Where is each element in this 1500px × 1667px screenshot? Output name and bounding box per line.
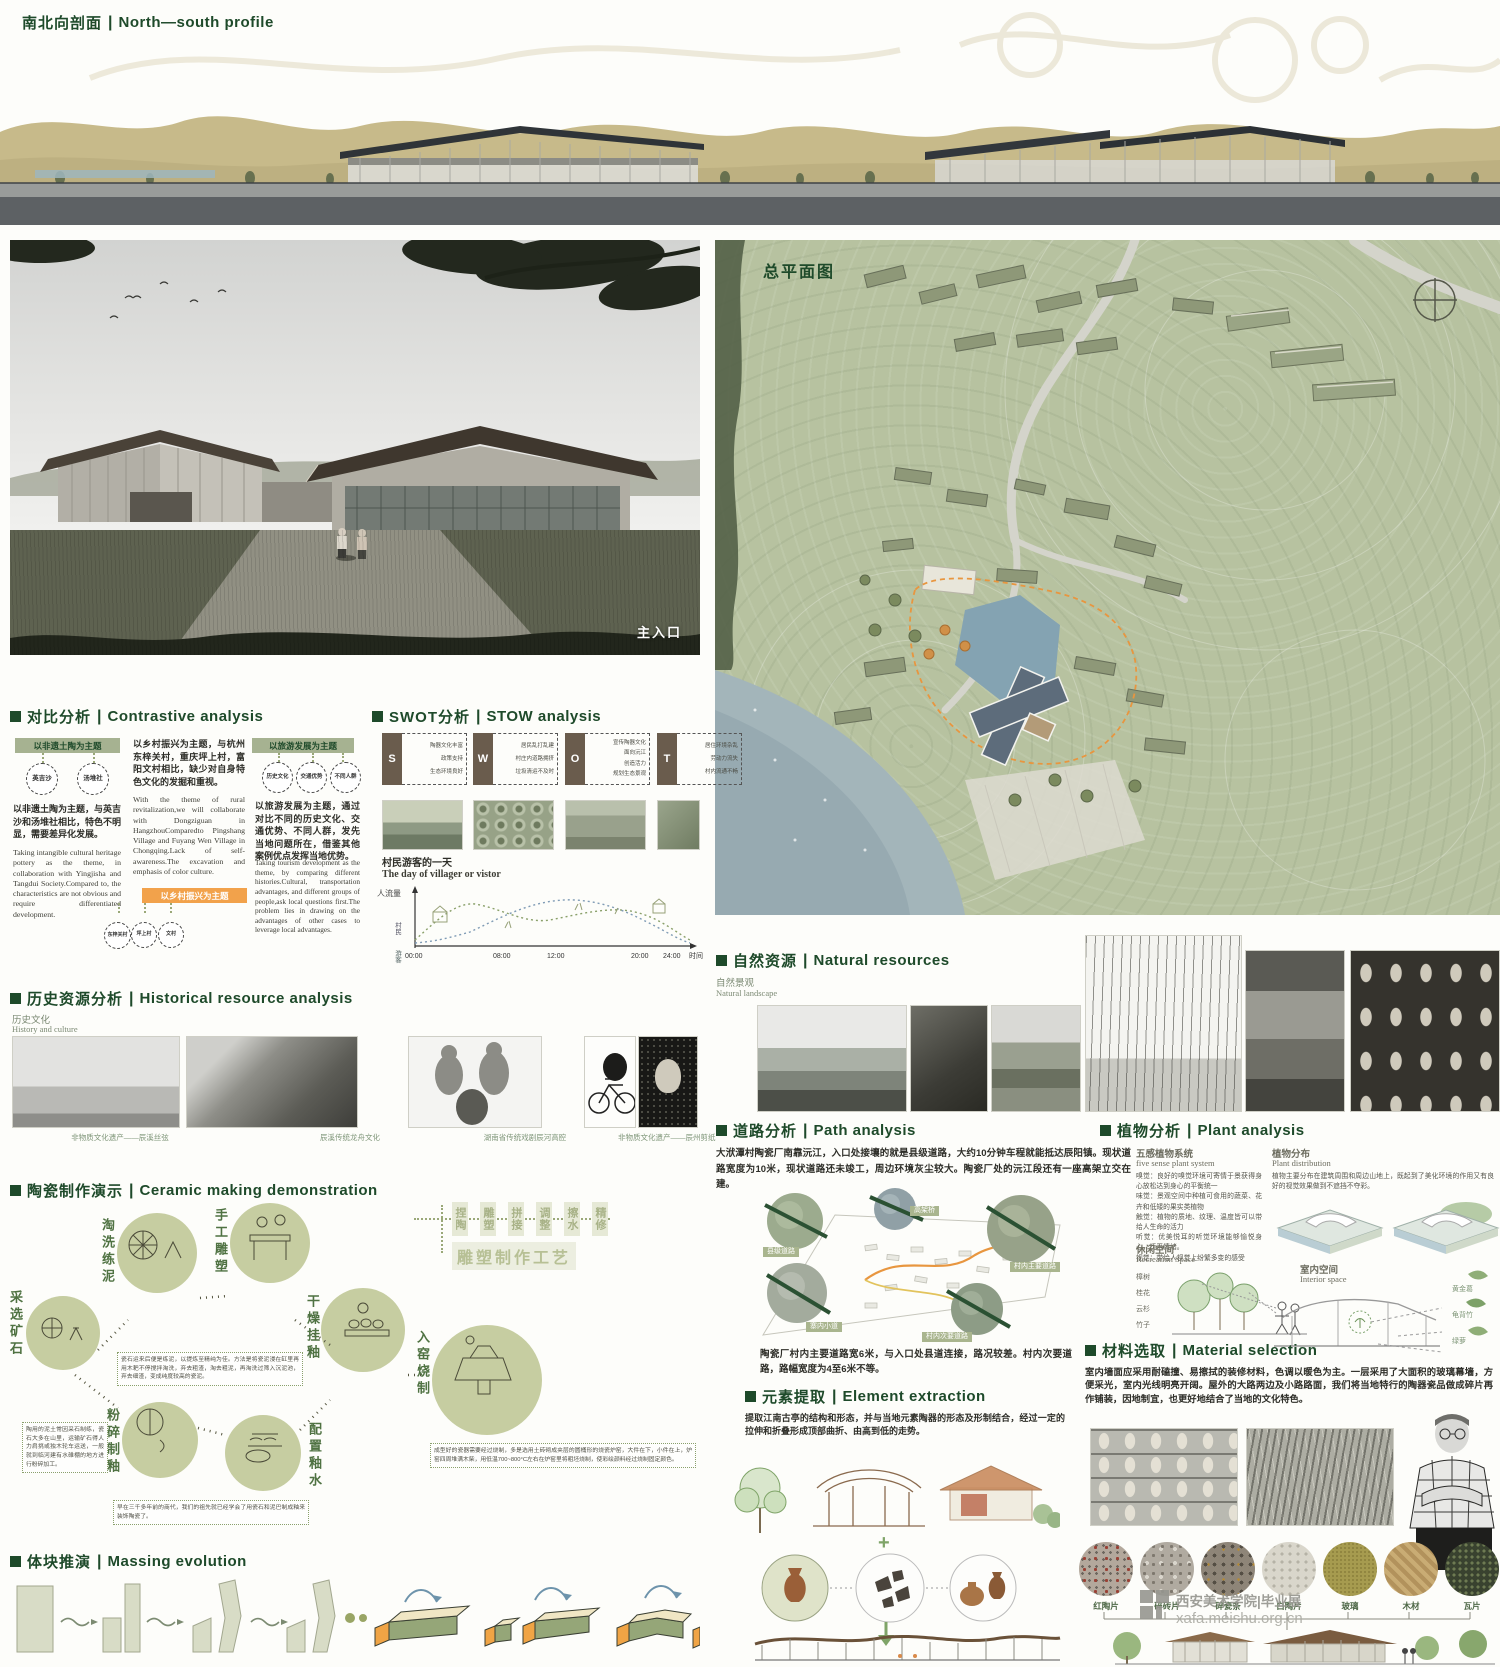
plant-title: 植物分析 | Plant analysis — [1100, 1120, 1305, 1141]
section-bullet — [10, 993, 21, 1004]
plant-distribution-diagrams — [1268, 1192, 1500, 1258]
natural-sub-en: Natural landscape — [716, 988, 777, 998]
rural-circle-3: 文村 — [158, 922, 184, 948]
watermark-logo-icon — [1140, 1590, 1170, 1620]
visitor-flow-chart: 人流量 村民 游客 00:00 08:00 12:00 20:00 24:00 … — [375, 884, 705, 969]
presentation-board: 南北向剖面 | North—south profile — [0, 0, 1500, 1667]
swot-title: SWOT分析 | STOW analysis — [372, 706, 601, 727]
tree-sketch — [735, 1468, 786, 1533]
plant-outdoor-3: 云杉 — [1136, 1304, 1150, 1314]
building-main-hall — [306, 426, 658, 530]
card-tourism-header: 以旅游发展为主题 — [252, 738, 354, 753]
section-bullet — [1100, 1125, 1111, 1136]
material-photo-pottery — [1090, 1428, 1238, 1526]
map-edge-trees — [715, 240, 745, 670]
tourism-circle-2: 交通优势 — [296, 762, 327, 793]
history-photo-opera — [408, 1036, 542, 1128]
card-pottery-header: 以非遗土陶为主题 — [15, 738, 120, 753]
pottery-text-zh: 以非遗土陶为主题，与英吉沙和汤堆社相比，特色不明显，需要差异化发展。 — [13, 803, 121, 841]
path-label-viaduct: 高架桥 — [910, 1206, 939, 1216]
card-rural-header: 以乡村振兴为主题 — [142, 888, 247, 903]
path-label-lane: 寨内小道 — [806, 1322, 842, 1332]
rural-circle-1: 东梓关村 — [104, 922, 131, 949]
material-swatch-red-pottery: 红陶片 — [1077, 1542, 1135, 1612]
swatch-texture — [1201, 1542, 1255, 1596]
svg-text:游客: 游客 — [394, 949, 402, 965]
profile-title: 南北向剖面 | North—south profile — [22, 12, 274, 33]
material-swatch-wood: 木材 — [1382, 1542, 1440, 1612]
swatch-texture — [1323, 1542, 1377, 1596]
history-photo-papercut — [638, 1036, 698, 1128]
pottery-circle-1: 英吉沙 — [26, 763, 58, 795]
swatch-texture — [1262, 1542, 1316, 1596]
swot-photo-river — [657, 800, 700, 850]
material-photo-timber — [1246, 1428, 1394, 1526]
five-sense-en: five sense plant system — [1136, 1158, 1215, 1168]
natural-photo-bare-trees — [1085, 935, 1242, 1112]
birds — [110, 282, 226, 318]
step-label-wash: 淘洗练泥 — [98, 1218, 117, 1286]
cottage-sketch — [940, 1466, 1060, 1528]
extracted-roof-elevation — [750, 1630, 1065, 1667]
section-bullet — [1085, 1345, 1096, 1356]
contrastive-title: 对比分析 | Contrastive analysis — [10, 706, 263, 727]
section-bullet — [10, 1556, 21, 1567]
north-south-profile-drawing — [0, 0, 1500, 232]
section-bullet — [372, 711, 383, 722]
interior-en: Interior space — [1300, 1274, 1347, 1284]
pavilion-sketch — [813, 1470, 925, 1526]
svg-text:20:00: 20:00 — [631, 953, 649, 960]
plant-outdoor-1: 樟树 — [1136, 1272, 1150, 1282]
step-label-glazewater: 配置釉水 — [305, 1422, 324, 1490]
swot-photo-street — [565, 800, 646, 850]
plant-outdoor-4: 竹子 — [1136, 1320, 1150, 1330]
svg-text:人流量: 人流量 — [377, 888, 401, 898]
building-left-hall — [40, 430, 280, 522]
tree-canopy — [10, 240, 700, 318]
note-glaze: 早在三千多年前的商代，我们的祖先就已经学会了用瓷石和泥巴制成釉来装饰陶瓷了。 — [113, 1500, 309, 1525]
plant-dist-text: 植物主要分布在建筑周围和周边山地上，既起到了美化环境的作用又有良好的视觉效果做到… — [1272, 1172, 1494, 1192]
element-sketches — [725, 1448, 1060, 1540]
pottery-element-circles — [740, 1552, 1040, 1624]
natural-sub-zh: 自然景观 — [716, 975, 754, 989]
element-text: 提取江南古亭的结构和形态，并与当地元素陶器的形态及形制结合，经过一定的拉伸和折叠… — [745, 1412, 1065, 1437]
path-label-county-road: 县级道路 — [763, 1247, 799, 1257]
step-label-sculpt: 手工雕塑 — [211, 1208, 230, 1276]
section-bullet — [10, 711, 21, 722]
massing-diagram — [5, 1578, 700, 1666]
swatch-texture — [1079, 1542, 1133, 1596]
rural-text-zh: 以乡村振兴为主题，与杭州东梓关村，重庆坪上村，富阳文村相比，缺少对自身特色文化的… — [133, 738, 245, 788]
material-elevation — [1105, 1628, 1500, 1667]
svg-text:08:00: 08:00 — [493, 953, 511, 960]
material-swatch-tile: 瓦片 — [1443, 1542, 1500, 1612]
svg-text:时间: 时间 — [689, 951, 703, 960]
pottery-circle-2: 汤堆社 — [77, 763, 109, 795]
plant-outdoor-2: 桂花 — [1136, 1288, 1150, 1298]
history-caption-3: 湖南省传统戏剧辰河高腔 — [445, 1133, 605, 1143]
pottery-text-en: Taking intangible cultural heritage pott… — [13, 848, 121, 920]
svg-text:00:00: 00:00 — [405, 953, 423, 960]
tourism-text-zh: 以旅游发展为主题，通过对比不同的历史文化、交通优势、不同人群，发先当地问题所在，… — [255, 800, 360, 863]
note-mine: 陶用的泥土常因采石制练，瓷石大多在山里，运输矿石得人力肩挑或独木轮车运送，一般就… — [22, 1422, 108, 1473]
ground-band — [0, 183, 1500, 197]
swot-card-o: O 宣传陶器文化面向沅江创造活力规划生态景观 — [565, 733, 650, 785]
tourism-circle-1: 历史文化 — [262, 762, 293, 793]
rural-text-en: With the theme of rural revitalization,w… — [133, 795, 245, 877]
swot-card-t: T 居住环境杂乱劳动力流失村内流通不畅 — [657, 733, 742, 785]
step-label-dry: 干燥挂釉 — [303, 1294, 322, 1362]
greenhouse-buildings — [1226, 308, 1395, 401]
history-photo-silk-strings — [12, 1036, 180, 1128]
site-plan-title: 总平面图 — [763, 258, 835, 282]
swot-card-s: S 陶器文化丰富政策支持生态环境良好 — [382, 733, 467, 785]
ceramic-doodles — [0, 1150, 700, 1550]
cloud-swirl-decoration — [90, 15, 1500, 100]
swatch-texture — [1140, 1542, 1194, 1596]
history-caption-2: 辰溪传统龙舟文化 — [285, 1133, 415, 1143]
svg-text:12:00: 12:00 — [547, 953, 565, 960]
note-clay: 瓷石运来后便是练泥，以提炼至精纯为佳。方法是将瓷泥浸在缸里再用木耙不停搅拌淘洗，… — [117, 1352, 303, 1386]
day-title-en: The day of villager or vistor — [382, 869, 501, 880]
white-roof-building — [922, 565, 976, 594]
entrance-label: 主入口 — [637, 622, 682, 641]
massing-title: 体块推演 | Massing evolution — [10, 1551, 247, 1572]
building-link — [262, 482, 332, 522]
path-title: 道路分析 | Path analysis — [716, 1120, 916, 1141]
history-photo-dragon-boat — [186, 1036, 358, 1128]
rural-circle-2: 坪上村 — [131, 922, 157, 948]
plant-dist-en: Plant distribution — [1272, 1158, 1331, 1168]
element-title: 元素提取 | Element extraction — [745, 1386, 986, 1407]
water-strip — [35, 170, 215, 178]
site-plan: 总平面图 — [715, 240, 1500, 915]
material-swatch-glass: 玻璃 — [1321, 1542, 1379, 1612]
natural-photo-field — [991, 1005, 1081, 1112]
watermark: 西安美术学院|毕业展 xafa.meishu.org.cn — [1140, 1590, 1303, 1627]
entrance-rendering: 主入口 — [10, 240, 700, 655]
natural-title: 自然资源 | Natural resources — [716, 950, 950, 971]
day-title-zh: 村民游客的一天 — [382, 854, 452, 869]
swatch-texture — [1445, 1542, 1499, 1596]
path-text-2: 陶瓷厂村内主要道路宽6米，与入口处县道连接，路况较差。村内次要道路，路幅宽度为4… — [760, 1347, 1072, 1377]
tourism-text-en: Taking tourism development as the theme,… — [255, 858, 360, 935]
history-title: 历史资源分析 | Historical resource analysis — [10, 988, 353, 1009]
section-bullet — [716, 955, 727, 966]
swot-card-w: W 居民乱打乱建村庄内道路拥挤垃圾清运不及时 — [473, 733, 558, 785]
path-label-secondary-road: 村内次要道路 — [922, 1332, 972, 1342]
svg-text:24:00: 24:00 — [663, 953, 681, 960]
step-label-mine: 采选矿石 — [6, 1290, 25, 1358]
swatch-texture — [1384, 1542, 1438, 1596]
svg-text:村民: 村民 — [394, 921, 402, 937]
natural-photo-pottery-shelf — [1350, 950, 1500, 1112]
material-text: 室内墙面应采用耐磕撞、易擦拭的装修材料，色调以暖色为主。一层采用了大面积的玻璃幕… — [1085, 1366, 1493, 1406]
section-bullet — [716, 1125, 727, 1136]
natural-photo-lake — [757, 1005, 907, 1112]
material-title: 材料选取 | Material selection — [1085, 1340, 1317, 1361]
leaf-icons — [1458, 1266, 1498, 1346]
history-sub-en: History and culture — [12, 1024, 78, 1034]
natural-photo-branches — [910, 1005, 988, 1112]
tourism-circle-3: 不同人群 — [330, 762, 361, 793]
history-photo-bicycle-papercut — [584, 1036, 636, 1128]
history-caption-1: 非物质文化遗产——辰溪丝弦 — [40, 1133, 200, 1143]
swot-photo-lake — [382, 800, 463, 850]
path-label-main-road: 村内主要道路 — [1010, 1262, 1060, 1272]
natural-photo-kiln-shed — [1245, 950, 1345, 1112]
swot-photo-pottery-rings — [473, 800, 554, 850]
step-label-kiln: 入窑烧制 — [413, 1330, 432, 1398]
note-kiln: 成型好的瓷器需要经过烧制，多是选用土砖砌成夹层的圆桶形的烧瓷炉窑，大件在下，小件… — [430, 1443, 696, 1468]
section-bullet — [745, 1391, 756, 1402]
